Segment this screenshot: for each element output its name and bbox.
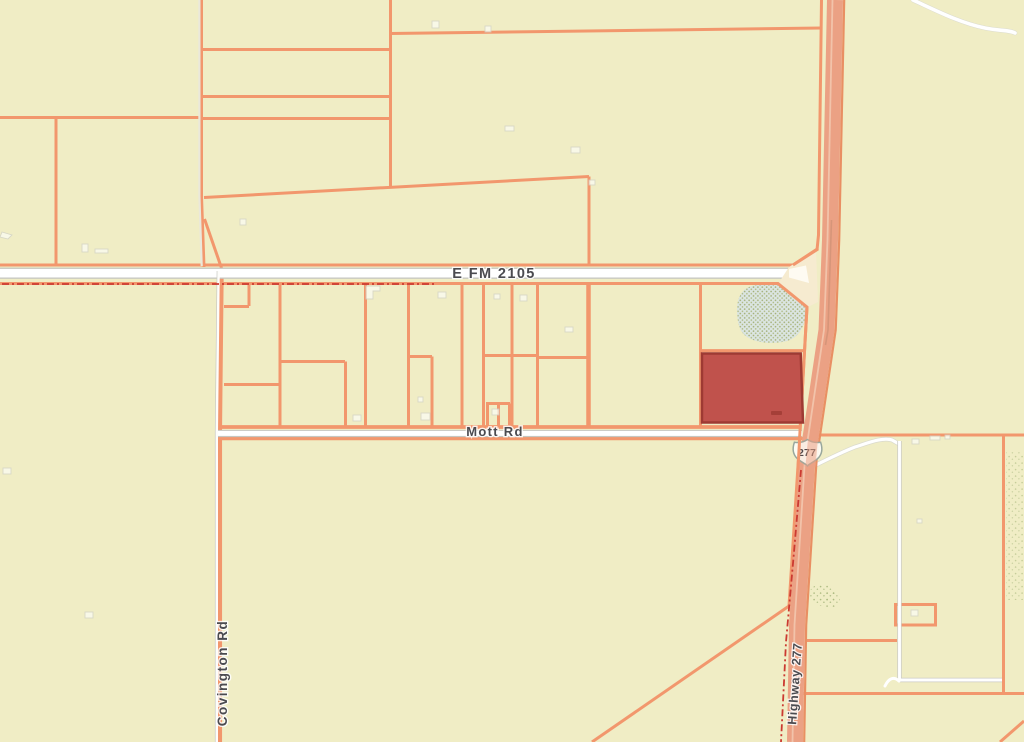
svg-text:Covington Rd: Covington Rd bbox=[215, 620, 230, 726]
svg-text:Mott Rd: Mott Rd bbox=[466, 424, 523, 439]
svg-text:E FM 2105: E FM 2105 bbox=[452, 266, 536, 282]
